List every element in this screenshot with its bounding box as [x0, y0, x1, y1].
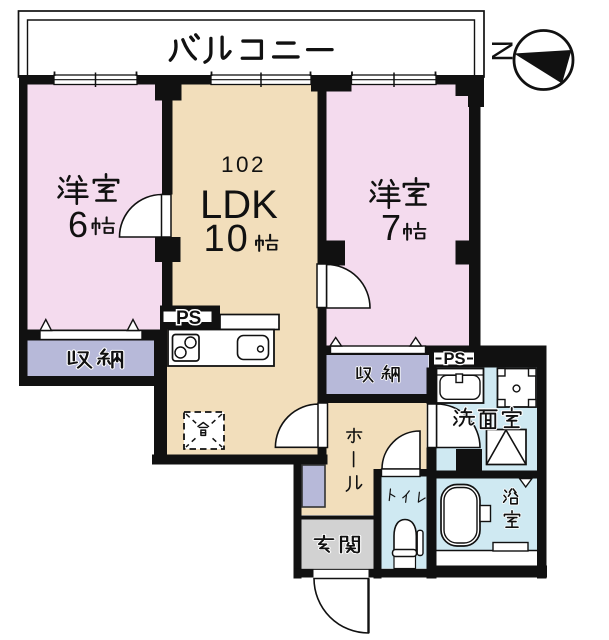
svg-text:6: 6: [68, 204, 88, 245]
svg-text:PS: PS: [176, 308, 201, 329]
svg-text:N: N: [485, 40, 518, 62]
svg-text:102: 102: [221, 152, 266, 177]
svg-text:PS: PS: [444, 350, 466, 368]
svg-text:7: 7: [381, 207, 401, 248]
svg-text:10: 10: [204, 218, 250, 260]
